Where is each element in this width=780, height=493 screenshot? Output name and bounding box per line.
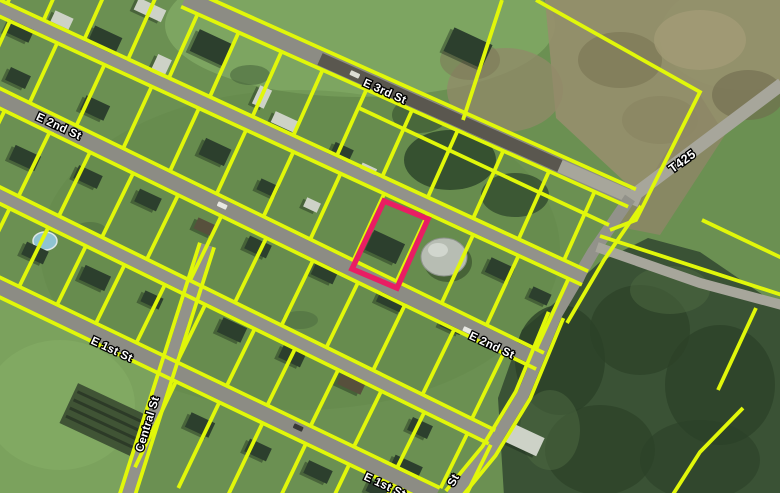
aerial-parcel-map[interactable]: E 3rd St E 2nd St E 2nd St E 1st St E 1s…	[0, 0, 780, 493]
map-canvas[interactable]: E 3rd St E 2nd St E 2nd St E 1st St E 1s…	[0, 0, 780, 493]
